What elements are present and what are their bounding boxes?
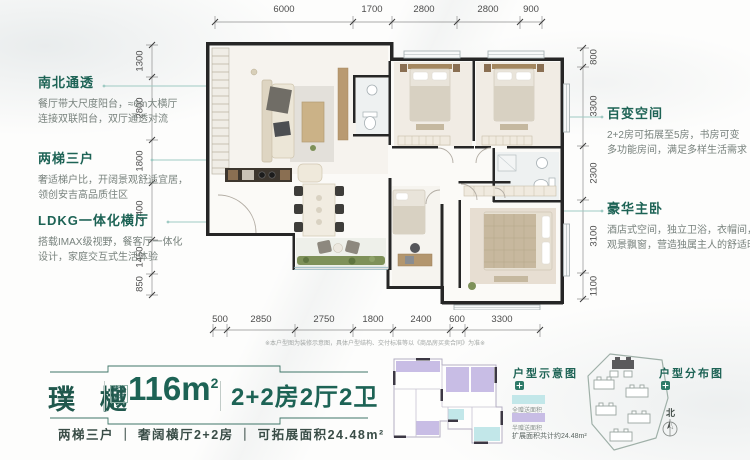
dim-bottom-5: 2400: [410, 314, 431, 325]
dim-left-1: 1300: [135, 50, 146, 71]
annotation-title: 豪华主卧: [607, 198, 750, 217]
annotation-flex-space: 百变空间 2+2房可拓展至5房，书房可变 多功能房间，满足多样生活需求: [607, 103, 747, 158]
highlighted-building: [612, 357, 634, 369]
annotation-line: 餐厅带大尺度阳台，≈6m大横厅: [38, 97, 177, 112]
schematic-title: 户型示意图: [513, 365, 578, 381]
annotation-line: 奢适梯户比，开阔景观舒适宜居，: [38, 173, 188, 188]
floor-plan-page: 6000 1700 2800 2800 900 500 2850 2750 18…: [0, 0, 750, 460]
disclaimer-text: ※本户型图为装修示意图，具体户型结构、交付标准等以《商品房买卖合同》为准※: [265, 338, 485, 347]
dim-bottom-1: 500: [212, 314, 228, 325]
annotation-line: 酒店式空间，独立卫浴，衣帽间，: [607, 223, 750, 238]
unit-tagline: 两梯三户 ｜ 奢阔横厅2+2房 ｜ 可拓展面积24.48m²: [58, 424, 385, 443]
dim-top-2: 1700: [361, 4, 382, 15]
annotation-line: 搭载IMAX级视野，餐客厅一体化: [38, 235, 182, 250]
north-arrow-icon: [662, 418, 678, 438]
annotation-line: 观景飘窗，营造独属主人的舒适时光: [607, 238, 750, 253]
dim-right-3: 2300: [589, 162, 600, 183]
annotation-title: 百变空间: [607, 103, 747, 122]
legend-swatch-full-gift: [512, 395, 545, 404]
seal-icon: [515, 381, 524, 390]
annotation-line: 多功能房间，满足多样生活需求: [607, 143, 747, 158]
dim-right-4: 3100: [589, 225, 600, 246]
annotation-line: 设计，家庭交互式生活体验: [38, 250, 182, 265]
dim-bottom-6: 600: [449, 314, 465, 325]
legend-swatch-half-gift: [512, 413, 545, 422]
floor-plan-drawing: [202, 28, 570, 310]
area-label-line: 面积: [111, 394, 127, 402]
dim-bottom-7: 3300: [491, 314, 512, 325]
dim-bottom-2: 2850: [250, 314, 271, 325]
annotation-two-elevators: 两梯三户 奢适梯户比，开阔景观舒适宜居， 领创安吉高品质住区: [38, 148, 188, 203]
area-label-line: 建筑: [111, 386, 127, 394]
dim-bottom-3: 2750: [313, 314, 334, 325]
annotation-line: 2+2房可拓展至5房，书房可变: [607, 128, 747, 143]
annotation-ldkg-hall: LDKG一体化横厅 搭载IMAX级视野，餐客厅一体化 设计，家庭交互式生活体验: [38, 210, 182, 265]
annotation-title: 两梯三户: [38, 148, 188, 167]
distribution-title: 户型分布图: [659, 365, 724, 381]
dim-top-4: 2800: [477, 4, 498, 15]
dim-top-3: 2800: [413, 4, 434, 15]
dim-right-2: 3300: [589, 95, 600, 116]
annotation-north-south: 南北通透 餐厅带大尺度阳台，≈6m大横厅 连接双联阳台，双厅通透对流: [38, 72, 177, 127]
annotation-title: 南北通透: [38, 72, 177, 91]
mini-schematic-plan: [386, 349, 508, 453]
annotation-title: LDKG一体化横厅: [38, 210, 182, 229]
dim-top-5: 900: [523, 4, 539, 15]
dim-left-6: 850: [135, 276, 146, 292]
divider: [104, 381, 105, 411]
dim-right-1: 800: [589, 49, 600, 65]
kitchen-counter: [225, 168, 292, 182]
dining-furniture: [294, 184, 344, 236]
annotation-master-suite: 豪华主卧 酒店式空间，独立卫浴，衣帽间， 观景飘窗，营造独属主人的舒适时光: [607, 198, 750, 253]
unit-layout: 2+2房2厅2卫: [231, 377, 378, 412]
dim-right-5: 1100: [589, 276, 600, 296]
storage-shelf: [212, 48, 229, 174]
seal-icon: [661, 381, 670, 390]
buildings: [594, 371, 650, 441]
divider: [220, 381, 221, 411]
dim-bottom-4: 1800: [362, 314, 383, 325]
expansion-area-note: 扩展面积共计约24.48m²: [512, 431, 587, 441]
area-value: 116m2: [128, 370, 218, 408]
annotation-line: 连接双联阳台，双厅通透对流: [38, 112, 177, 127]
dim-top-1: 6000: [273, 4, 294, 15]
area-label: 建筑 面积: [110, 385, 128, 403]
annotation-line: 领创安吉高品质住区: [38, 188, 188, 203]
